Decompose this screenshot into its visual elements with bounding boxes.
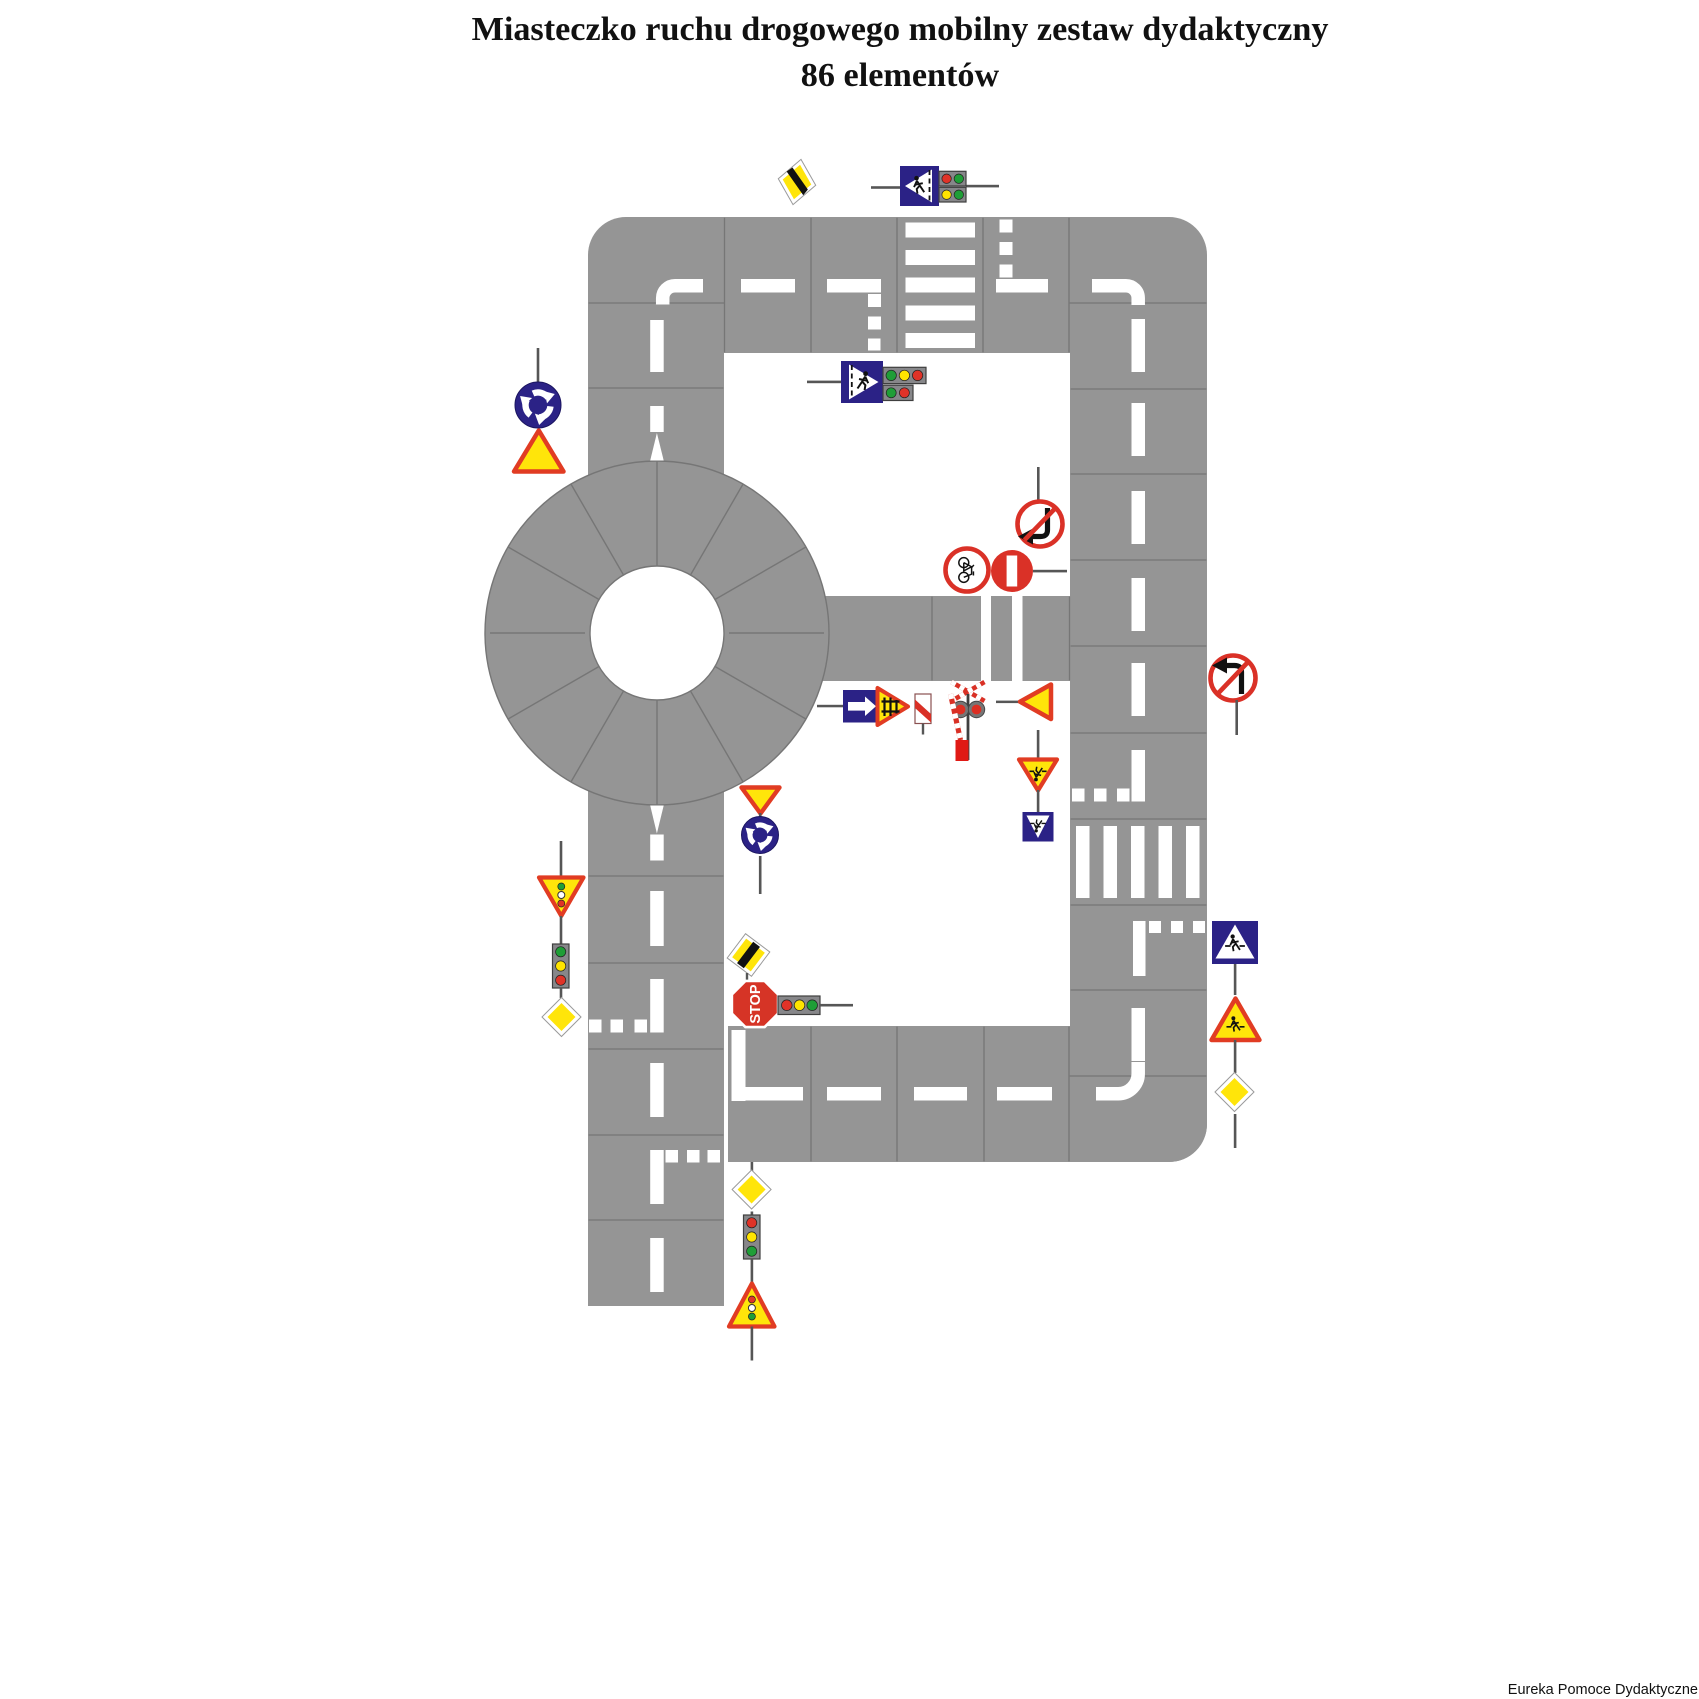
- svg-text:STOP: STOP: [748, 984, 764, 1024]
